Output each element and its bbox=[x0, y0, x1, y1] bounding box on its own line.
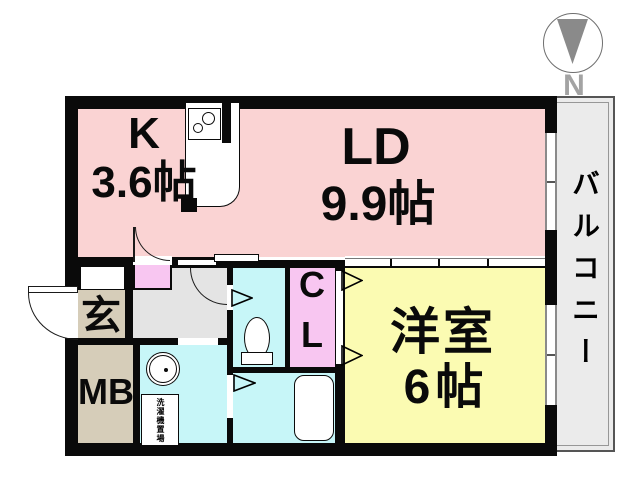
hall-sliding-panel bbox=[177, 259, 217, 266]
closet-door-arrow-icon bbox=[341, 345, 363, 366]
stove-burner bbox=[193, 123, 203, 133]
stove-icon bbox=[188, 108, 221, 140]
toilet-door-arrow-icon bbox=[231, 289, 253, 307]
washing-machine-space: 洗濯機置場 bbox=[141, 394, 179, 446]
upper-door-track bbox=[259, 257, 345, 260]
shoe-cabinet bbox=[80, 266, 125, 290]
partition-track-line bbox=[345, 258, 545, 259]
western-room-name-label: 洋室 bbox=[383, 306, 503, 358]
floorplan-canvas: N バルコニー bbox=[0, 0, 640, 480]
window-ld-balcony bbox=[545, 133, 557, 230]
partition-tick bbox=[487, 259, 489, 266]
stove-burner bbox=[202, 112, 215, 125]
north-arrow-icon bbox=[544, 14, 601, 71]
entrance-door-leaf bbox=[28, 286, 78, 293]
washbasin-drain-dot bbox=[164, 368, 168, 372]
closet-door-arrow-icon bbox=[341, 270, 363, 291]
kitchen-area-label: 3.6帖 bbox=[74, 160, 214, 206]
partition-tick bbox=[390, 259, 392, 266]
toilet-tank bbox=[241, 352, 273, 365]
closet-label-bottom: L bbox=[289, 316, 335, 354]
bathroom-door-arrow-icon bbox=[233, 374, 256, 392]
entrance-label: 玄 bbox=[81, 295, 121, 337]
partition-tick bbox=[438, 259, 440, 266]
compass bbox=[543, 13, 603, 73]
window-sash-divider bbox=[547, 181, 555, 183]
partition-ld-western bbox=[345, 256, 545, 268]
western-room-area-label: 6帖 bbox=[386, 363, 506, 413]
hall-closet bbox=[133, 262, 172, 290]
kitchen-code-label: K bbox=[114, 111, 174, 157]
balcony-label: バルコニー bbox=[555, 98, 613, 450]
hall-sliding-panel bbox=[214, 254, 259, 262]
window-western-balcony bbox=[545, 305, 557, 405]
living-dining-area-label: 9.9帖 bbox=[308, 180, 448, 230]
washbasin-inner-ring bbox=[149, 355, 177, 383]
room-balcony: バルコニー bbox=[553, 96, 615, 452]
living-dining-code-label: LD bbox=[326, 120, 426, 174]
window-sash-divider bbox=[547, 354, 555, 356]
washbasin-icon bbox=[146, 352, 180, 386]
closet-label-top: C bbox=[289, 266, 335, 304]
washroom-door-opening bbox=[178, 338, 218, 345]
counter-wall-stub bbox=[222, 103, 231, 143]
bathtub-icon bbox=[294, 375, 334, 441]
meter-box-label: MB bbox=[76, 373, 136, 411]
entrance-door-swing-arc bbox=[28, 293, 78, 340]
washing-machine-label: 洗濯機置場 bbox=[156, 398, 164, 443]
